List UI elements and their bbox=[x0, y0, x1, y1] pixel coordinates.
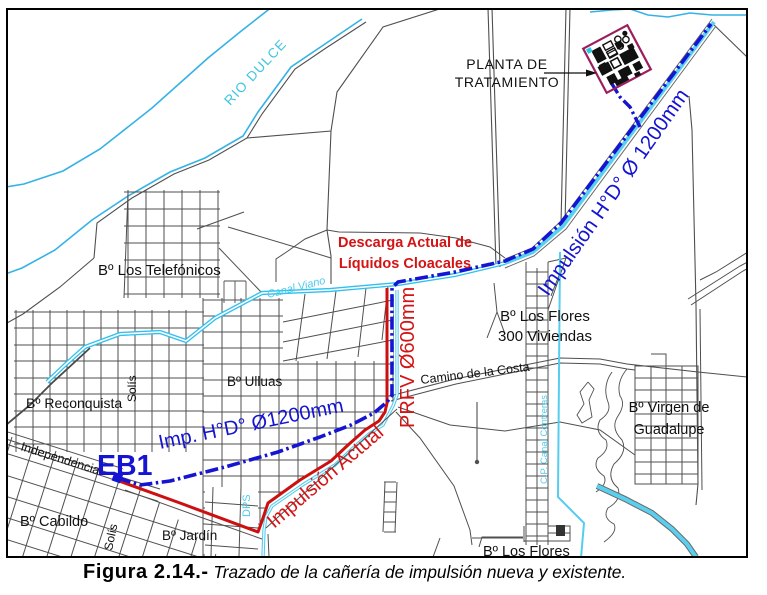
svg-text:Impulsión H°D° Ø 1200mm: Impulsión H°D° Ø 1200mm bbox=[533, 85, 693, 300]
svg-text:Bº Los Flores: Bº Los Flores bbox=[500, 308, 590, 325]
svg-text:Bº Ulluas: Bº Ulluas bbox=[227, 374, 282, 389]
svg-text:Solís: Solís bbox=[125, 375, 139, 402]
svg-text:Líquidos Cloacales: Líquidos Cloacales bbox=[339, 256, 471, 272]
svg-text:Bº Cabildo: Bº Cabildo bbox=[20, 514, 88, 530]
svg-text:Descarga Actual de: Descarga Actual de bbox=[338, 235, 472, 251]
svg-text:300 Viviendas: 300 Viviendas bbox=[498, 328, 592, 345]
svg-text:DPS: DPS bbox=[241, 494, 253, 517]
svg-text:Camino de la Costa: Camino de la Costa bbox=[420, 360, 531, 387]
svg-text:RIO DULCE: RIO DULCE bbox=[221, 36, 289, 108]
svg-text:C.P. Canal Contreras: C.P. Canal Contreras bbox=[539, 395, 550, 484]
svg-text:EB1: EB1 bbox=[97, 450, 153, 482]
svg-text:Bº Jardín: Bº Jardín bbox=[162, 528, 217, 543]
svg-text:Independencia: Independencia bbox=[19, 440, 101, 478]
svg-text:TRATAMIENTO: TRATAMIENTO bbox=[455, 74, 560, 90]
svg-text:Guadalupe: Guadalupe bbox=[634, 422, 705, 438]
svg-text:PLANTA DE: PLANTA DE bbox=[466, 56, 547, 72]
svg-text:Bº Virgen de: Bº Virgen de bbox=[629, 400, 710, 416]
svg-text:Bº Reconquista: Bº Reconquista bbox=[26, 395, 122, 411]
svg-text:PRFV Ø600mm: PRFV Ø600mm bbox=[397, 287, 419, 428]
svg-text:Bº Los Telefónicos: Bº Los Telefónicos bbox=[98, 262, 221, 279]
svg-text:Impulsión Actual: Impulsión Actual bbox=[263, 421, 388, 532]
